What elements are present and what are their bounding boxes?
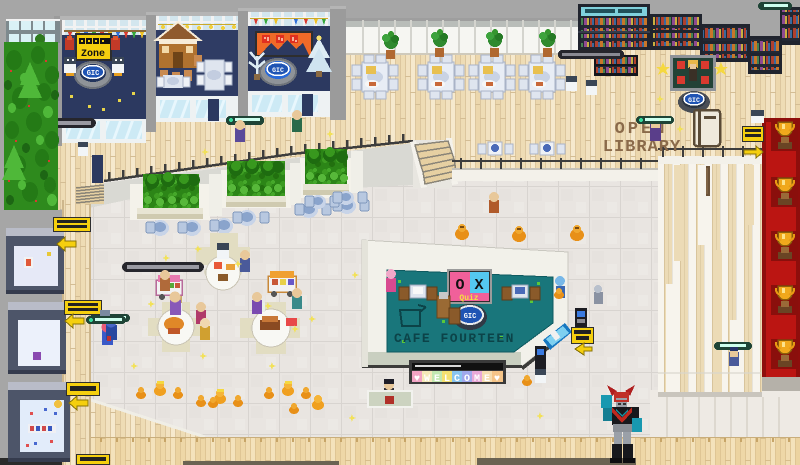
svg-text:E: E (434, 374, 440, 385)
svg-text:W: W (424, 374, 430, 385)
svg-text:Zone: Zone (81, 49, 105, 60)
svg-text:C: C (454, 374, 460, 385)
svg-text:E: E (484, 374, 490, 385)
svg-text:LIBRARY: LIBRARY (603, 138, 681, 157)
svg-text:GIC: GIC (87, 70, 100, 78)
svg-text:Quiz: Quiz (459, 294, 478, 303)
svg-text:O: O (464, 374, 470, 385)
svg-text:GIC: GIC (464, 313, 477, 321)
svg-text:X: X (474, 277, 483, 294)
svg-text:♥: ♥ (494, 374, 500, 385)
svg-text:GIC: GIC (272, 67, 284, 74)
svg-text:GIC: GIC (688, 97, 700, 104)
svg-text:CAFE FOURTEEN: CAFE FOURTEEN (394, 331, 515, 346)
svg-text:L: L (444, 374, 450, 385)
svg-text:♥: ♥ (414, 374, 420, 385)
svg-text:O: O (455, 277, 464, 294)
svg-text:M: M (474, 374, 480, 385)
